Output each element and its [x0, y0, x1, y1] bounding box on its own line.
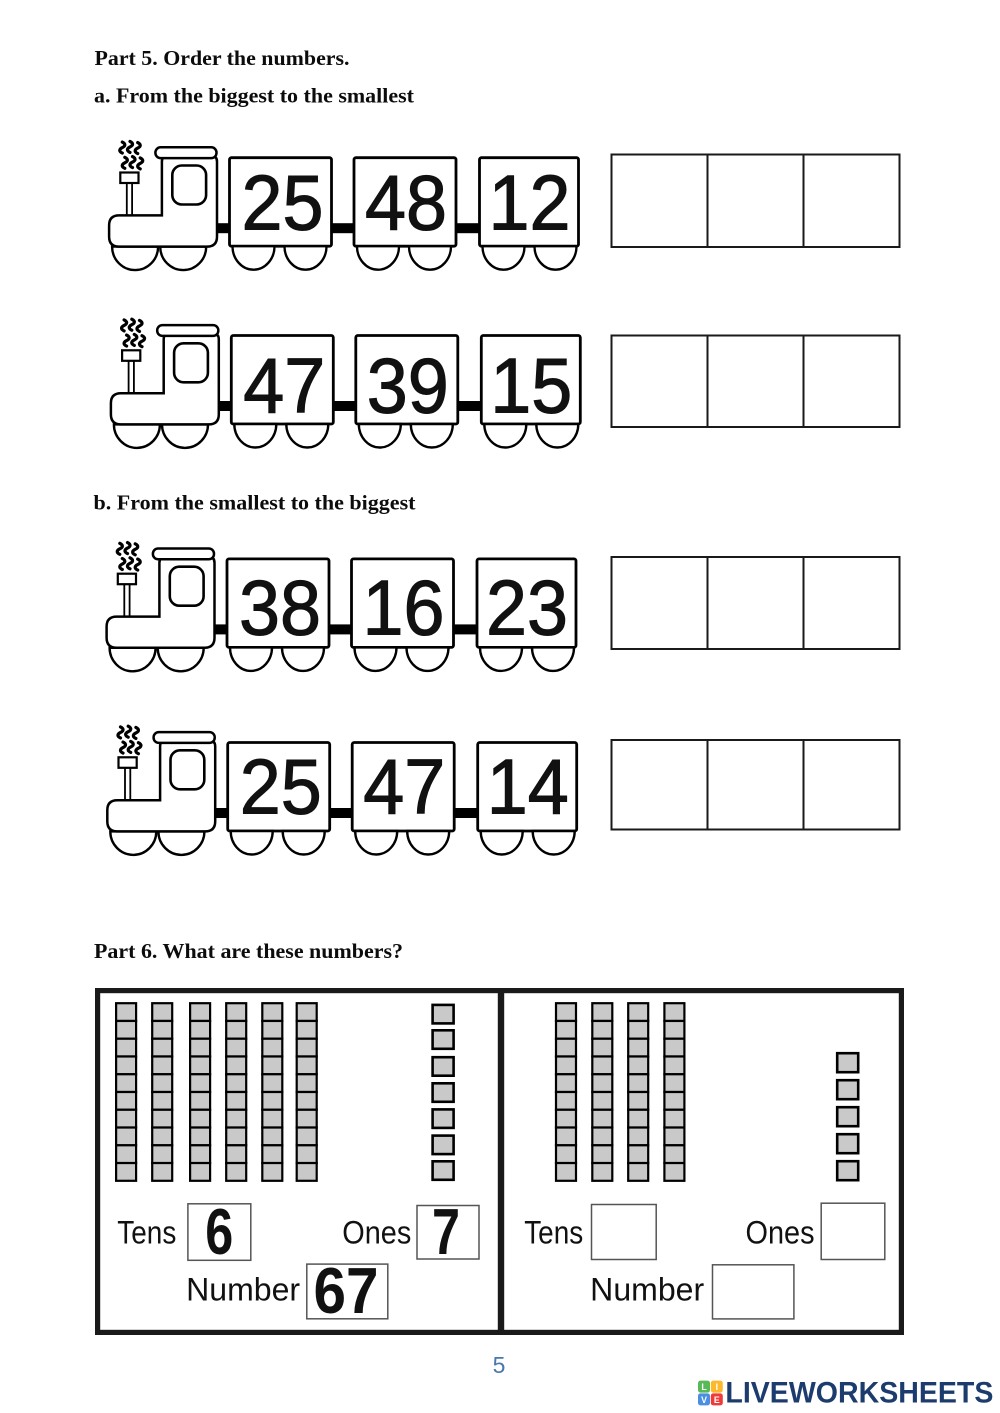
svg-text:b. From the smallest to the bi: b. From the smallest to the biggest	[94, 490, 416, 514]
svg-text:38: 38	[239, 563, 321, 651]
svg-text:7: 7	[432, 1195, 460, 1268]
svg-text:Ones: Ones	[746, 1215, 815, 1251]
svg-text:Number: Number	[590, 1272, 704, 1308]
svg-text:Part 5. Order the numbers.: Part 5. Order the numbers.	[95, 46, 350, 70]
svg-text:Number: Number	[186, 1272, 300, 1308]
svg-text:Part 6. What are these numbers: Part 6. What are these numbers?	[94, 939, 403, 963]
svg-text:25: 25	[242, 159, 324, 247]
svg-text:Ones: Ones	[342, 1215, 411, 1251]
svg-text:14: 14	[487, 743, 569, 831]
svg-text:Tens: Tens	[524, 1215, 583, 1251]
svg-text:E: E	[714, 1395, 720, 1405]
svg-text:15: 15	[490, 342, 572, 430]
svg-text:V: V	[701, 1395, 707, 1405]
svg-text:a. From the biggest to the sma: a. From the biggest to the smallest	[94, 83, 414, 107]
svg-text:6: 6	[205, 1195, 233, 1268]
svg-text:I: I	[716, 1382, 718, 1392]
svg-text:39: 39	[367, 342, 449, 430]
svg-text:LIVEWORKSHEETS: LIVEWORKSHEETS	[725, 1377, 993, 1410]
svg-text:47: 47	[243, 342, 325, 430]
svg-text:16: 16	[363, 563, 445, 651]
svg-text:12: 12	[489, 159, 571, 247]
svg-text:47: 47	[363, 743, 445, 831]
svg-text:67: 67	[314, 1254, 379, 1327]
svg-text:Tens: Tens	[117, 1215, 176, 1251]
svg-text:L: L	[701, 1382, 707, 1392]
svg-text:25: 25	[240, 743, 322, 831]
svg-text:5: 5	[493, 1352, 506, 1378]
svg-text:48: 48	[365, 159, 447, 247]
svg-text:23: 23	[486, 563, 568, 651]
